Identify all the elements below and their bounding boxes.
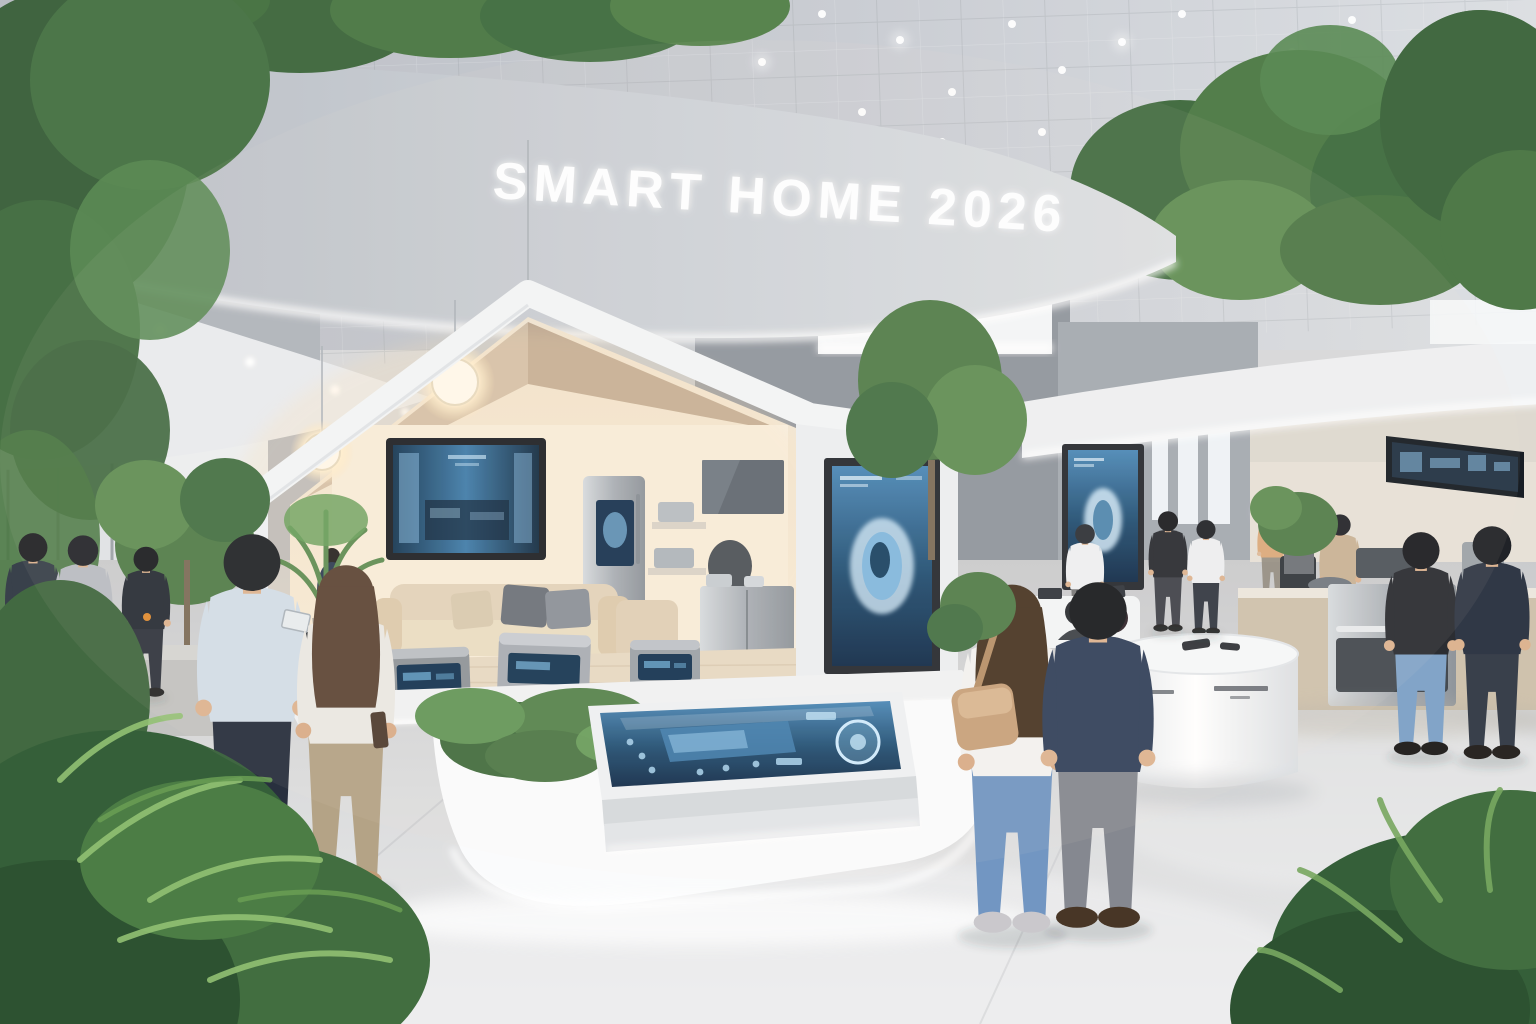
exhibition-photo: SMART HOME 2026 SMART HOME 2026	[0, 0, 1536, 1024]
light-overlays	[0, 0, 1536, 1024]
